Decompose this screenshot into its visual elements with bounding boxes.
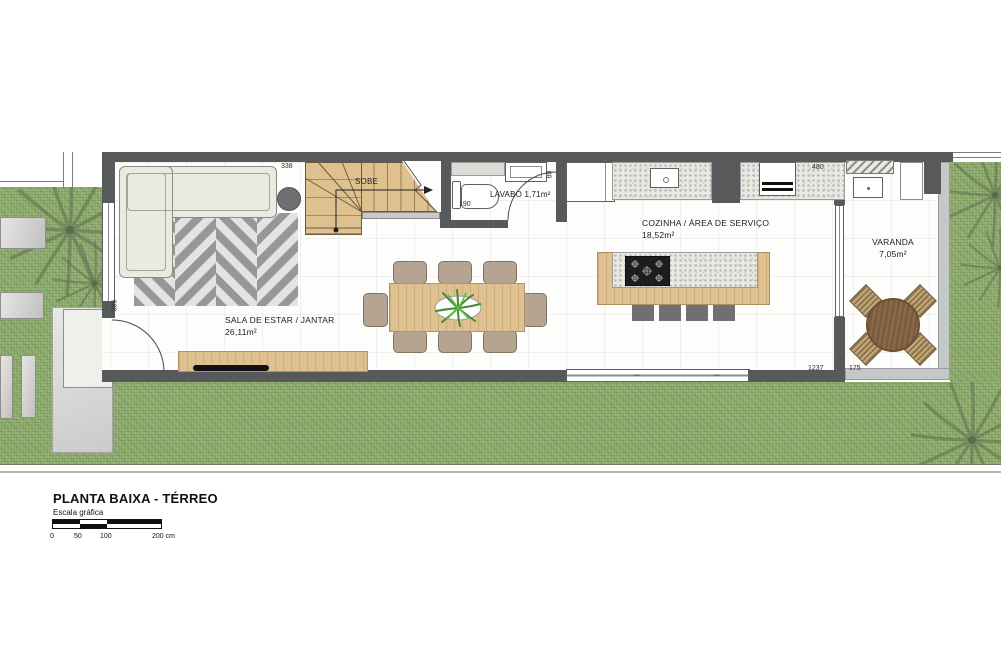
dining-chair (483, 261, 517, 284)
lavabo-sink (505, 162, 547, 182)
varanda-round-table (866, 298, 920, 352)
garden-paver (0, 292, 44, 319)
kitchen-name: COZINHA / ÁREA DE SERVIÇO (642, 217, 769, 229)
dining-chair (522, 293, 547, 327)
oven-handle (762, 188, 793, 191)
scale-segment (107, 524, 161, 528)
stairs-lower-flight (305, 162, 362, 235)
page-title: PLANTA BAIXA - TÉRREO (53, 491, 218, 506)
island-stool (659, 305, 681, 321)
garden-paver (0, 217, 46, 249)
roof-line (0, 181, 63, 182)
dim-190: 190 (459, 201, 471, 208)
living-room-area: 26,11m² (225, 326, 334, 338)
oven-handle (762, 182, 793, 185)
palm-tree-icon (958, 226, 1001, 310)
living-room-label: SALA DE ESTAR / JANTAR 26,11m² (225, 314, 334, 338)
grass-bottom (0, 382, 1001, 465)
rug-stripe (175, 213, 216, 306)
varanda-right-wall (938, 162, 950, 380)
rug-stripe (257, 213, 298, 306)
kitchen-area: 18,52m² (642, 229, 769, 241)
dim-338: 338 (281, 163, 293, 170)
side-table (277, 187, 301, 211)
stairs-label: SOBE (355, 176, 378, 188)
island-stool (713, 305, 735, 321)
tv (193, 365, 269, 371)
varanda-sink-drain (867, 187, 870, 190)
lot-boundary-line-2 (0, 471, 1001, 473)
bottom-wall (748, 370, 845, 382)
dim-80: 80 (544, 162, 556, 186)
palm-tree-icon (907, 382, 1001, 465)
scale-tick-0: 0 (50, 533, 54, 540)
dining-chair (363, 293, 388, 327)
dining-chair (393, 261, 427, 284)
scale-tick-200: 200 cm (152, 533, 175, 540)
kitchen-sliding-door (566, 369, 750, 382)
floor-plan-canvas: SOBE SALA DE ESTAR / JANTAR 26,11m² LAVA… (0, 0, 1001, 661)
dim-480: 480 (812, 164, 824, 171)
scale-segment (53, 524, 80, 528)
living-room-name: SALA DE ESTAR / JANTAR (225, 314, 334, 326)
roof-line (63, 152, 64, 188)
living-window (102, 202, 115, 302)
kitchen-sink-drain (663, 177, 669, 183)
refrigerator (566, 162, 615, 202)
island-stool (632, 305, 654, 321)
dim-386: 386 (108, 290, 122, 320)
cooktop (625, 256, 670, 286)
kitchen-counter-pier (712, 162, 740, 203)
varanda-area: 7,05m² (845, 248, 941, 260)
scale-tick-50: 50 (74, 533, 82, 540)
lavabo-label: LAVABO 1,71m² (490, 189, 551, 201)
dining-chair (483, 330, 517, 353)
island-stool (686, 305, 708, 321)
varanda-name: VARANDA (845, 236, 941, 248)
varanda-corner-pier (924, 162, 941, 194)
left-wall (102, 162, 115, 202)
lavabo-counter (451, 162, 505, 176)
rug-stripe (216, 213, 257, 306)
scale-tick-100: 100 (100, 533, 112, 540)
varanda-sink (853, 177, 883, 198)
stairs-knee-wall (362, 212, 440, 219)
kitchen-sink (650, 168, 679, 188)
dining-chair (438, 261, 472, 284)
roof-line (72, 152, 73, 188)
kitchen-label: COZINHA / ÁREA DE SERVIÇO 18,52m² (642, 217, 769, 241)
dining-chair (393, 330, 427, 353)
divider-wall (834, 317, 845, 382)
oven (759, 162, 796, 196)
dim-175: 175 (849, 365, 861, 372)
table-plant-icon (433, 289, 483, 327)
varanda-counter (900, 162, 923, 200)
varanda-glass-door (835, 205, 844, 317)
varanda-label: VARANDA 7,05m² (845, 236, 941, 260)
grill-hatch (846, 160, 894, 174)
dim-1237: 1237 (808, 365, 824, 372)
sofa-cushion-line (126, 173, 166, 271)
lavabo-bottom-wall (440, 220, 508, 228)
lavabo-sink-basin (510, 166, 542, 178)
scale-segment (80, 524, 107, 528)
scale-bar-row (53, 524, 161, 528)
garden-paver (21, 355, 36, 418)
dining-chair (438, 330, 472, 353)
scale-caption: Escala gráfica (53, 508, 103, 517)
lot-boundary-line (0, 464, 1001, 465)
graphic-scale-bar (52, 519, 162, 529)
top-wall (102, 152, 953, 162)
refrigerator-door-line (605, 163, 606, 201)
garden-paver (0, 355, 13, 419)
lavabo-left-wall (440, 162, 451, 228)
